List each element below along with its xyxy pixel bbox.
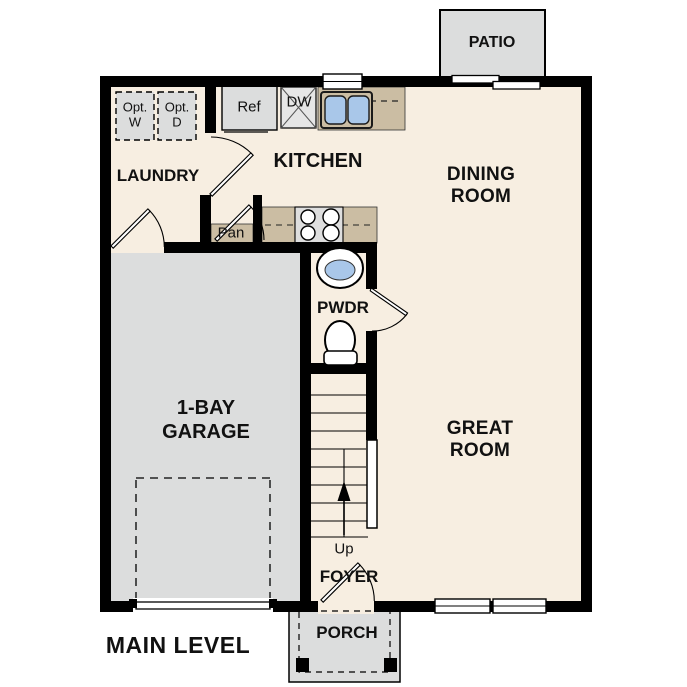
wall-laundry-kitchen (205, 87, 216, 133)
wall-stairs-right (366, 374, 377, 440)
wall-right (581, 76, 592, 612)
porch-post-left (296, 658, 309, 672)
foyer-label: FOYER (320, 567, 379, 587)
wall-pantry-right (253, 195, 262, 242)
pantry-label: Pan (218, 224, 245, 241)
stove-cooktop (295, 207, 343, 243)
optional-dryer-label: Opt. D (165, 100, 190, 129)
powder-toilet (324, 321, 357, 365)
stair-railing (367, 440, 377, 528)
window-greatroom-left (435, 599, 490, 613)
patio-label: PATIO (469, 34, 516, 52)
laundry-label: LAUNDRY (117, 166, 199, 186)
wall-left (100, 76, 111, 612)
window-kitchen (323, 74, 362, 89)
porch-post-right (384, 658, 397, 672)
wall-powder-right-upper (366, 242, 377, 289)
window-greatroom-right (493, 599, 546, 613)
wall-garage-right (300, 242, 311, 612)
refrigerator-label: Ref (237, 98, 260, 115)
garage-door-opening (129, 598, 277, 614)
kitchen-sink (321, 92, 372, 128)
floor-plan: PATIO LAUNDRY KITCHEN DINING ROOM PWDR 1… (0, 0, 687, 687)
garage-label: 1-BAY GARAGE (162, 396, 250, 444)
porch-label: PORCH (316, 623, 377, 643)
kitchen-label: KITCHEN (274, 149, 363, 173)
plan-title: MAIN LEVEL (106, 632, 250, 658)
stairs-up-label: Up (334, 540, 353, 557)
dining-room-label: DINING ROOM (447, 164, 515, 208)
dishwasher-label: DW (287, 93, 312, 110)
powder-room-label: PWDR (317, 298, 369, 318)
optional-washer-label: Opt. W (123, 100, 148, 129)
powder-sink (317, 248, 363, 288)
great-room-label: GREAT ROOM (447, 418, 514, 462)
